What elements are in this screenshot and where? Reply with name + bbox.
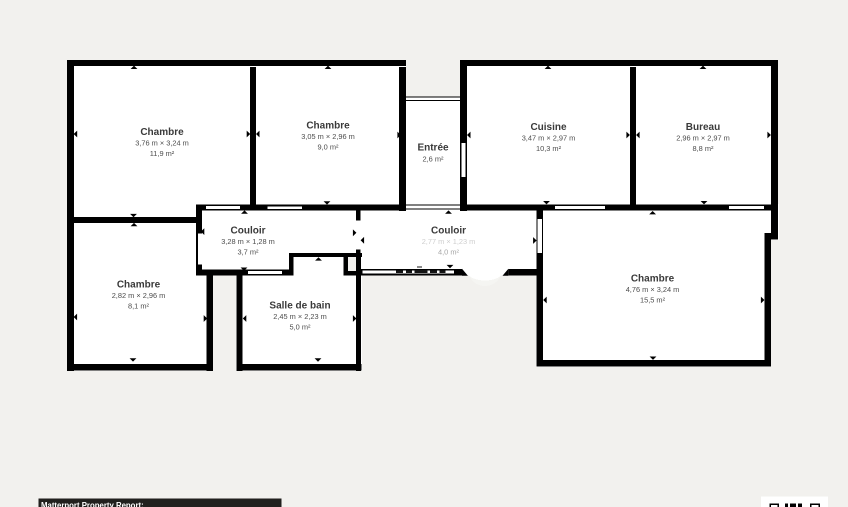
svg-text:3,05 m × 2,96 m: 3,05 m × 2,96 m [301, 132, 355, 141]
svg-text:2,96 m × 2,97 m: 2,96 m × 2,97 m [676, 134, 730, 143]
svg-text:9,0 m²: 9,0 m² [318, 143, 339, 152]
svg-text:3,7 m²: 3,7 m² [238, 248, 259, 257]
svg-text:8,8 m²: 8,8 m² [693, 144, 714, 153]
svg-text:2,45 m × 2,23 m: 2,45 m × 2,23 m [273, 312, 327, 321]
svg-text:11,9 m²: 11,9 m² [150, 149, 175, 158]
svg-text:8,1 m²: 8,1 m² [128, 302, 149, 311]
svg-text:3,76 m × 3,24 m: 3,76 m × 3,24 m [135, 139, 189, 148]
svg-text:10,3 m²: 10,3 m² [536, 144, 562, 153]
svg-text:Salle de bain: Salle de bain [269, 301, 330, 312]
svg-text:Couloir: Couloir [431, 226, 466, 237]
svg-text:2,77 m × 1,23 m: 2,77 m × 1,23 m [422, 237, 476, 246]
svg-text:Cuisine: Cuisine [530, 122, 567, 133]
svg-text:2,82 m × 2,96 m: 2,82 m × 2,96 m [112, 291, 166, 300]
svg-text:Couloir: Couloir [231, 226, 266, 237]
svg-text:Chambre: Chambre [140, 127, 184, 138]
svg-text:15,5 m²: 15,5 m² [640, 296, 666, 305]
svg-text:Chambre: Chambre [306, 121, 350, 132]
svg-text:3,28 m × 1,28 m: 3,28 m × 1,28 m [221, 237, 275, 246]
svg-text:4,0 m²: 4,0 m² [438, 248, 459, 257]
svg-text:Chambre: Chambre [117, 280, 161, 291]
svg-text:Bureau: Bureau [686, 122, 720, 133]
svg-text:Entrée: Entrée [417, 143, 449, 154]
svg-text:4,76 m × 3,24 m: 4,76 m × 3,24 m [626, 285, 680, 294]
svg-text:Matterport Property Report:: Matterport Property Report: [41, 501, 144, 507]
svg-text:5,0 m²: 5,0 m² [290, 323, 311, 332]
svg-text:3,47 m × 2,97 m: 3,47 m × 2,97 m [522, 134, 576, 143]
svg-text:2,6 m²: 2,6 m² [423, 155, 444, 164]
svg-text:Chambre: Chambre [631, 274, 675, 285]
